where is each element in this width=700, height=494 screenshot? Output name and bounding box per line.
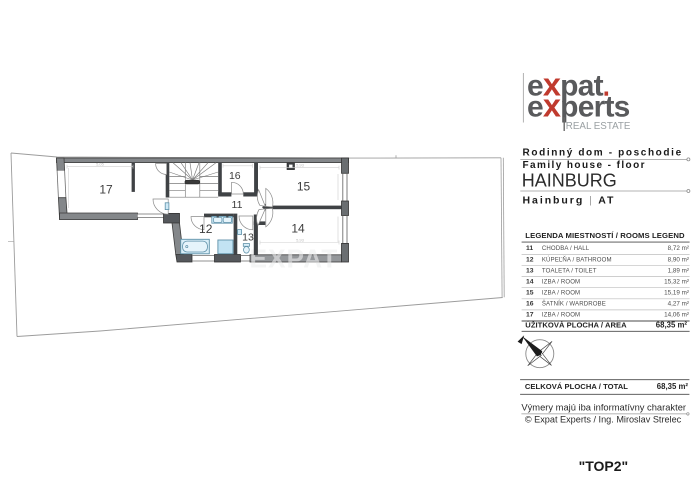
svg-text:Rodinný dom - poschodie: Rodinný dom - poschodie xyxy=(523,147,683,158)
svg-text:68,35 m²: 68,35 m² xyxy=(657,382,689,391)
svg-text:"TOP2": "TOP2" xyxy=(579,458,629,474)
svg-text:TOALETA / TOILET: TOALETA / TOILET xyxy=(542,267,597,274)
svg-text:5,93: 5,93 xyxy=(296,163,305,168)
svg-text:12: 12 xyxy=(526,256,534,263)
svg-text:11: 11 xyxy=(526,245,533,252)
svg-text:KÚPEĽŇA / BATHROOM: KÚPEĽŇA / BATHROOM xyxy=(542,256,612,263)
svg-text:5,05: 5,05 xyxy=(96,162,105,167)
svg-text:15: 15 xyxy=(526,289,534,296)
svg-text:CELKOVÁ PLOCHA / TOTAL: CELKOVÁ PLOCHA / TOTAL xyxy=(525,382,628,391)
svg-text:LEGENDA MIESTNOSTÍ / ROOMS LEG: LEGENDA MIESTNOSTÍ / ROOMS LEGEND xyxy=(525,231,685,240)
svg-text:15,19 m²: 15,19 m² xyxy=(664,289,689,296)
svg-text:IZBA / ROOM: IZBA / ROOM xyxy=(542,279,580,286)
svg-text:17: 17 xyxy=(99,182,113,196)
svg-text:15: 15 xyxy=(297,179,311,193)
svg-text:HAINBURG: HAINBURG xyxy=(522,170,617,190)
svg-text:14,06 m²: 14,06 m² xyxy=(664,312,689,319)
svg-text:17: 17 xyxy=(526,312,534,319)
svg-text:14: 14 xyxy=(526,279,534,286)
svg-text:4,27 m²: 4,27 m² xyxy=(668,301,689,308)
svg-text:68,35 m²: 68,35 m² xyxy=(656,320,688,329)
svg-text:16: 16 xyxy=(229,170,241,182)
svg-text:CHODBA / HALL: CHODBA / HALL xyxy=(542,245,590,252)
svg-text:12: 12 xyxy=(199,222,213,236)
svg-text:1,89 m²: 1,89 m² xyxy=(668,267,689,274)
svg-text:© Expat Experts / Ing. Mirosla: © Expat Experts / Ing. Miroslav Strelec xyxy=(525,415,682,425)
svg-text:ŠATNÍK / WARDROBE: ŠATNÍK / WARDROBE xyxy=(542,301,606,308)
svg-text:IZBA / ROOM: IZBA / ROOM xyxy=(542,312,580,319)
svg-text:Family house - floor: Family house - floor xyxy=(523,160,646,171)
svg-text:5,93: 5,93 xyxy=(296,238,305,243)
svg-text:16: 16 xyxy=(526,301,534,308)
svg-text:EXPAT: EXPAT xyxy=(250,244,339,274)
svg-text:8,90 m²: 8,90 m² xyxy=(668,256,689,263)
svg-text:IZBA / ROOM: IZBA / ROOM xyxy=(542,289,580,296)
svg-text:8,72 m²: 8,72 m² xyxy=(668,245,689,252)
svg-text:ÚŽITKOVÁ PLOCHA / AREA: ÚŽITKOVÁ PLOCHA / AREA xyxy=(525,320,627,329)
svg-text:11: 11 xyxy=(232,199,243,211)
svg-text:experts: experts xyxy=(527,87,630,123)
svg-text:13: 13 xyxy=(242,232,254,244)
svg-text:15,32 m²: 15,32 m² xyxy=(664,279,689,286)
svg-text:Hainburg | AT: Hainburg | AT xyxy=(523,195,616,207)
svg-text:Výmery majú iba informatívny c: Výmery majú iba informatívny charakter xyxy=(521,402,686,412)
svg-text:13: 13 xyxy=(526,267,534,274)
svg-text:14: 14 xyxy=(291,222,305,236)
svg-text:REAL ESTATE: REAL ESTATE xyxy=(566,121,631,132)
